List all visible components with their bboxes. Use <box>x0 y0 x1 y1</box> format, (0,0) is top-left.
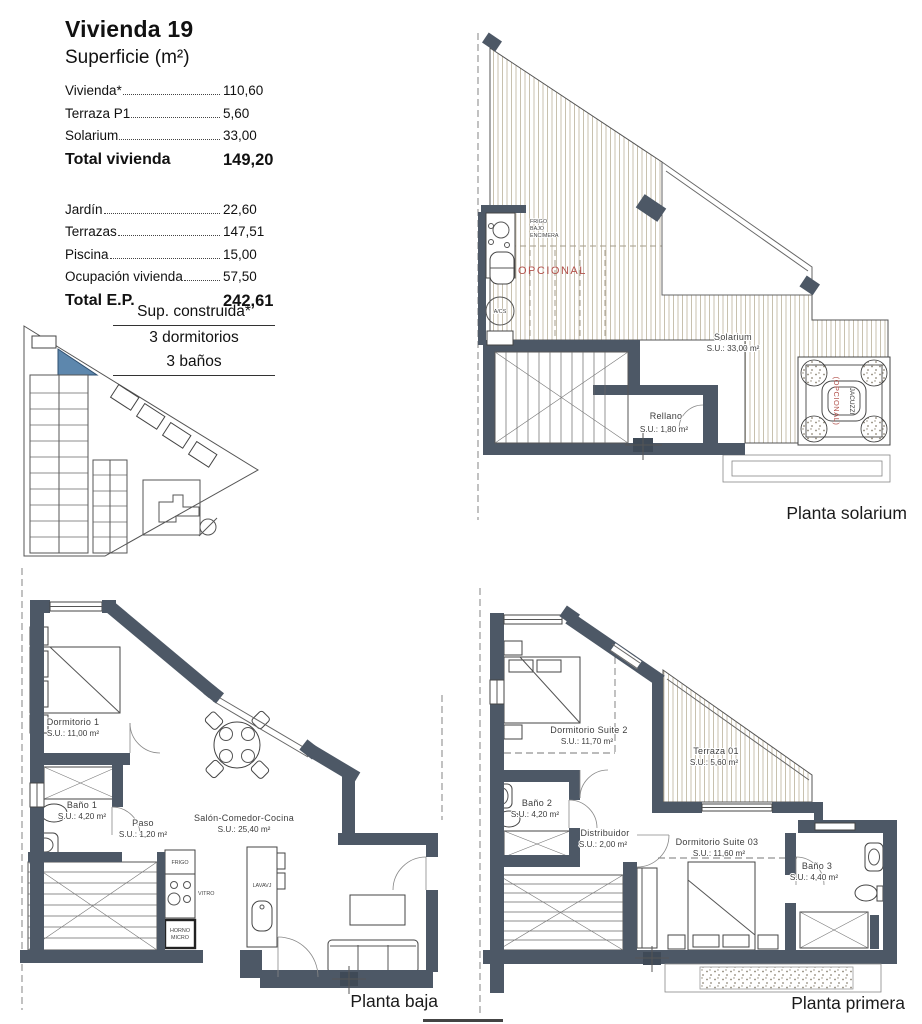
bano1-area: S.U.: 4,20 m² <box>58 812 107 821</box>
table-row: Ocupación vivienda57,50 <box>65 269 281 284</box>
solarium-room-area: S.U.: 33,00 m² <box>707 344 760 353</box>
total-value: 149,20 <box>223 151 281 170</box>
row-label: Terrazas <box>65 224 117 239</box>
stairwell <box>483 340 745 455</box>
leader-dots <box>123 94 220 95</box>
row-value: 57,50 <box>223 269 281 284</box>
lower-porch-outline <box>723 455 890 482</box>
lavavajillas-label: LAVAVJ <box>253 883 272 889</box>
plan-caption: Planta solarium <box>786 503 907 523</box>
kitchen: FRIGO VITRO HORNO MICRO <box>165 850 214 948</box>
row-label: Terraza P1 <box>65 106 130 121</box>
wardrobe <box>637 868 657 948</box>
row-value: 22,60 <box>223 202 281 217</box>
plan-baja: FRIGO VITRO HORNO MICRO LAVAVJ <box>10 565 460 1015</box>
stairs <box>28 862 157 950</box>
surface-panel: Vivienda 19 Superficie (m²) Vivienda*110… <box>65 16 295 321</box>
bed-suite03 <box>668 862 778 950</box>
suite03-area: S.U.: 11,60 m² <box>693 849 745 858</box>
bano1-label: Baño 1 <box>67 800 97 810</box>
highlighted-unit <box>58 349 97 375</box>
row-label: Ocupación vivienda <box>65 269 183 284</box>
table-row: Piscina15,00 <box>65 247 281 262</box>
jacuzzi-label: JACUZZI <box>848 388 855 415</box>
rotated-units <box>111 385 217 468</box>
rellano-room-label: Rellano <box>650 411 683 421</box>
leader-dots <box>104 213 220 214</box>
dormitorio1-area: S.U.: 11,00 m² <box>47 729 99 738</box>
row-label: Piscina <box>65 247 109 262</box>
table-row: Terrazas147,51 <box>65 224 281 239</box>
total-label: Total vivienda <box>65 151 171 170</box>
dining-table <box>204 710 271 780</box>
row-value: 147,51 <box>223 224 281 239</box>
rowhouse-strip-a <box>30 375 88 553</box>
distribuidor-area: S.U.: 2,00 m² <box>579 840 628 849</box>
plan-caption: Planta baja <box>350 991 438 1011</box>
frigo-label: FRIGO <box>171 860 188 866</box>
bathroom3-fixtures <box>800 843 883 949</box>
row-label: Vivienda* <box>65 83 122 98</box>
horno-label: HORNO <box>170 928 190 934</box>
plan-caption: Planta primera <box>791 993 905 1013</box>
bano3-area: S.U.: 4,40 m² <box>790 873 839 882</box>
open-terrace <box>662 162 812 295</box>
row-value: 110,60 <box>223 83 281 98</box>
dormitorio1-label: Dormitorio 1 <box>47 717 100 727</box>
row-label: Solarium <box>65 128 118 143</box>
balcony <box>665 964 881 992</box>
table-row: Vivienda*110,60 <box>65 83 281 98</box>
paso-label: Paso <box>132 818 154 828</box>
distribuidor-label: Distribuidor <box>580 828 629 838</box>
clubhouse <box>143 480 200 535</box>
vitro-label: VITRO <box>198 891 214 897</box>
leader-dots <box>184 280 220 281</box>
terraza-deck <box>663 670 812 802</box>
bano2-label: Baño 2 <box>522 798 552 808</box>
leader-dots <box>131 117 220 118</box>
table-row: Jardín22,60 <box>65 202 281 217</box>
coffee-table <box>350 895 405 925</box>
surface-subtitle: Superficie (m²) <box>65 47 295 69</box>
rellano-room-area: S.U.: 1,80 m² <box>640 425 689 434</box>
leader-dots <box>119 139 220 140</box>
site-plan <box>15 320 265 565</box>
frigo-label: ENCIMERA <box>530 233 559 239</box>
plan-solarium: FRIGO BAJO ENCIMERA OPCIONAL A/CS (OPCIO… <box>470 28 922 528</box>
total-vivienda-row: Total vivienda149,20 <box>65 151 281 170</box>
row-value: 33,00 <box>223 128 281 143</box>
row-value: 5,60 <box>223 106 281 121</box>
row-value: 15,00 <box>223 247 281 262</box>
sofa <box>328 940 418 973</box>
terraza-label: Terraza 01 <box>693 746 739 756</box>
suite2-label: Dormitorio Suite 2 <box>550 725 627 735</box>
frigo-label: BAJO <box>530 226 544 232</box>
row-label: Jardín <box>65 202 103 217</box>
opcional-label: OPCIONAL <box>518 265 587 277</box>
bano2-area: S.U.: 4,20 m² <box>511 810 560 819</box>
plan-primera: Dormitorio Suite 2 S.U.: 11,70 m² Terraz… <box>465 585 922 1015</box>
kitchen-island: LAVAVJ <box>247 847 285 947</box>
stairs <box>495 352 628 443</box>
solarium-room-label: Solarium <box>714 332 752 342</box>
paso-area: S.U.: 1,20 m² <box>119 830 168 839</box>
stairs <box>498 875 623 950</box>
leader-dots <box>118 235 220 236</box>
compass-icon <box>199 518 217 536</box>
jacuzzi: (OPCIONAL) JACUZZI <box>798 357 890 445</box>
suite03-label: Dormitorio Suite 03 <box>676 837 759 847</box>
leader-dots <box>110 258 220 259</box>
scale-bar <box>423 1019 503 1022</box>
table-row: Terraza P15,60 <box>65 106 281 121</box>
site-unit <box>32 336 56 348</box>
bano3-label: Baño 3 <box>802 861 832 871</box>
terraza-area: S.U.: 5,60 m² <box>690 758 739 767</box>
page-title: Vivienda 19 <box>65 16 295 43</box>
micro-label: MICRO <box>171 935 189 941</box>
acs-label: A/CS <box>494 309 507 315</box>
jacuzzi-opcional-label: (OPCIONAL) <box>832 377 841 426</box>
suite2-area: S.U.: 11,70 m² <box>561 737 613 746</box>
frigo-label: FRIGO <box>530 219 547 225</box>
salon-label: Salón-Comedor-Cocina <box>194 813 294 823</box>
table-row: Solarium33,00 <box>65 128 281 143</box>
salon-area: S.U.: 25,40 m² <box>218 825 271 834</box>
rowhouse-strip-b <box>93 460 127 553</box>
